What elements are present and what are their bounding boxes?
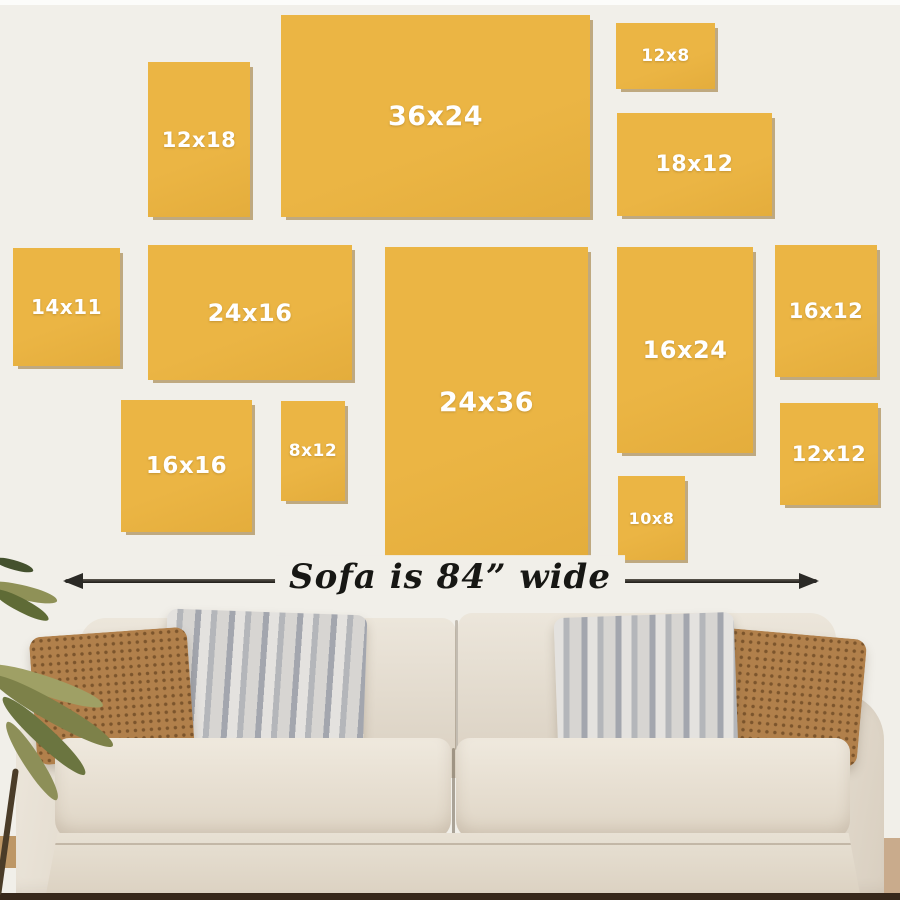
sofa-base (46, 833, 860, 894)
pillow-gray-right (554, 612, 739, 758)
sofa-seat-seam (452, 748, 455, 840)
sofa-seat-cushion-right (456, 738, 850, 840)
sofa-base-seam (46, 843, 860, 845)
floor-strip (0, 893, 900, 900)
sofa-back-seam (455, 620, 458, 750)
sofa (0, 0, 900, 900)
sofa-seat-cushion-left (55, 738, 451, 840)
size-guide-scene: 12x18 36x24 12x8 18x12 14x11 24x16 16x16… (0, 0, 900, 900)
